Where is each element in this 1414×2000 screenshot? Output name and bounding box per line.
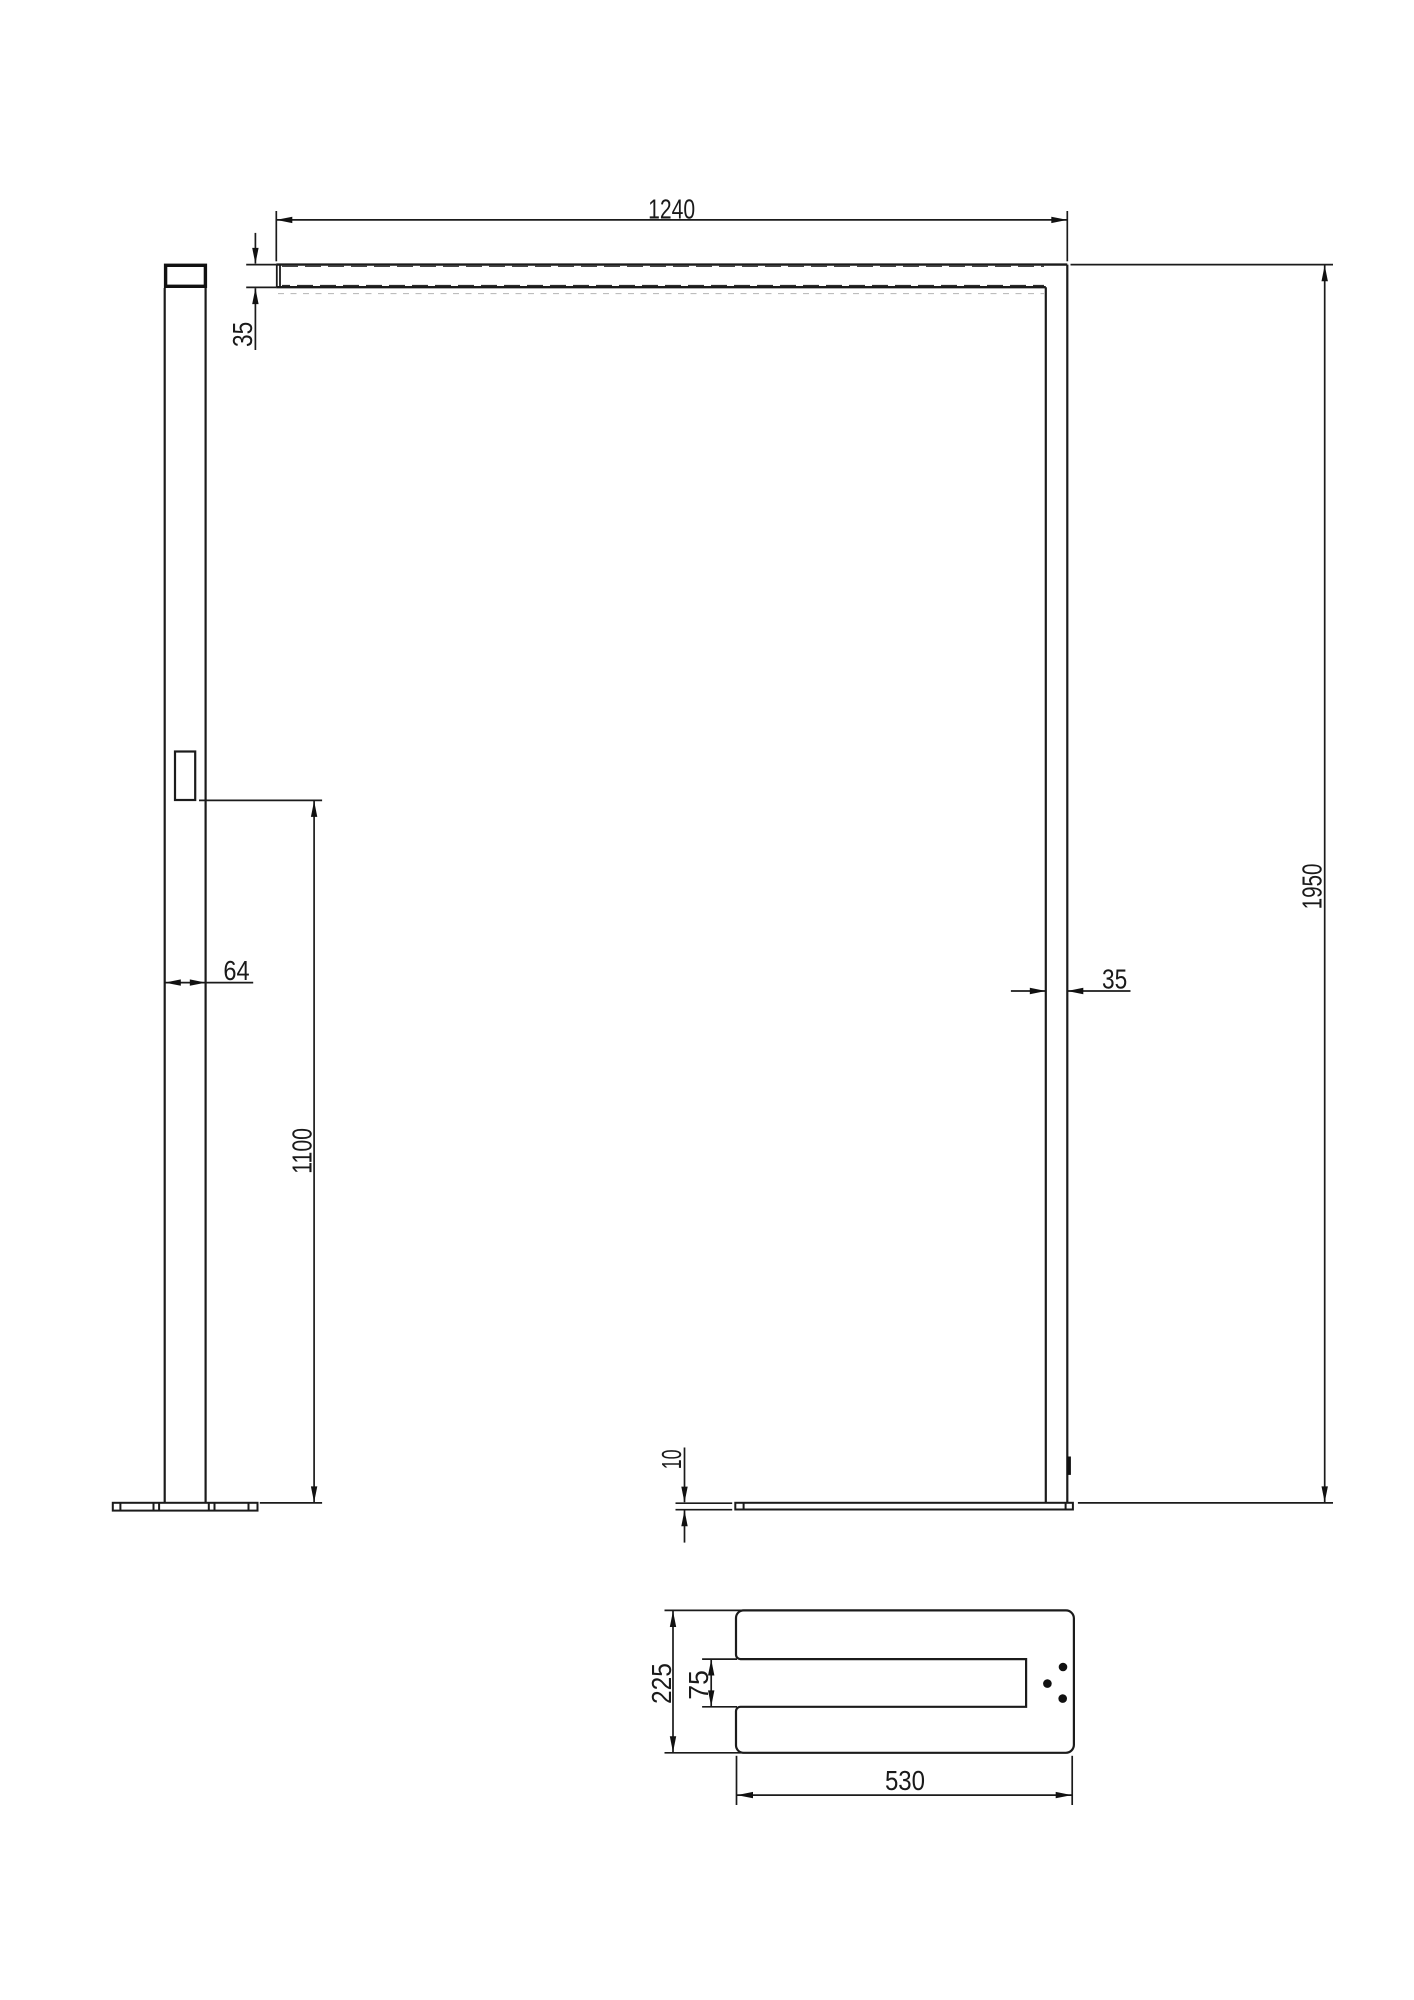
svg-text:1100: 1100 [286, 1128, 317, 1174]
svg-text:225: 225 [646, 1663, 677, 1704]
svg-text:35: 35 [1102, 963, 1127, 994]
svg-text:10: 10 [656, 1450, 687, 1470]
svg-text:1950: 1950 [1297, 864, 1328, 910]
svg-text:75: 75 [683, 1670, 714, 1700]
svg-text:1240: 1240 [648, 193, 695, 224]
svg-text:64: 64 [223, 955, 249, 986]
svg-text:530: 530 [885, 1765, 925, 1796]
svg-text:35: 35 [227, 322, 258, 347]
